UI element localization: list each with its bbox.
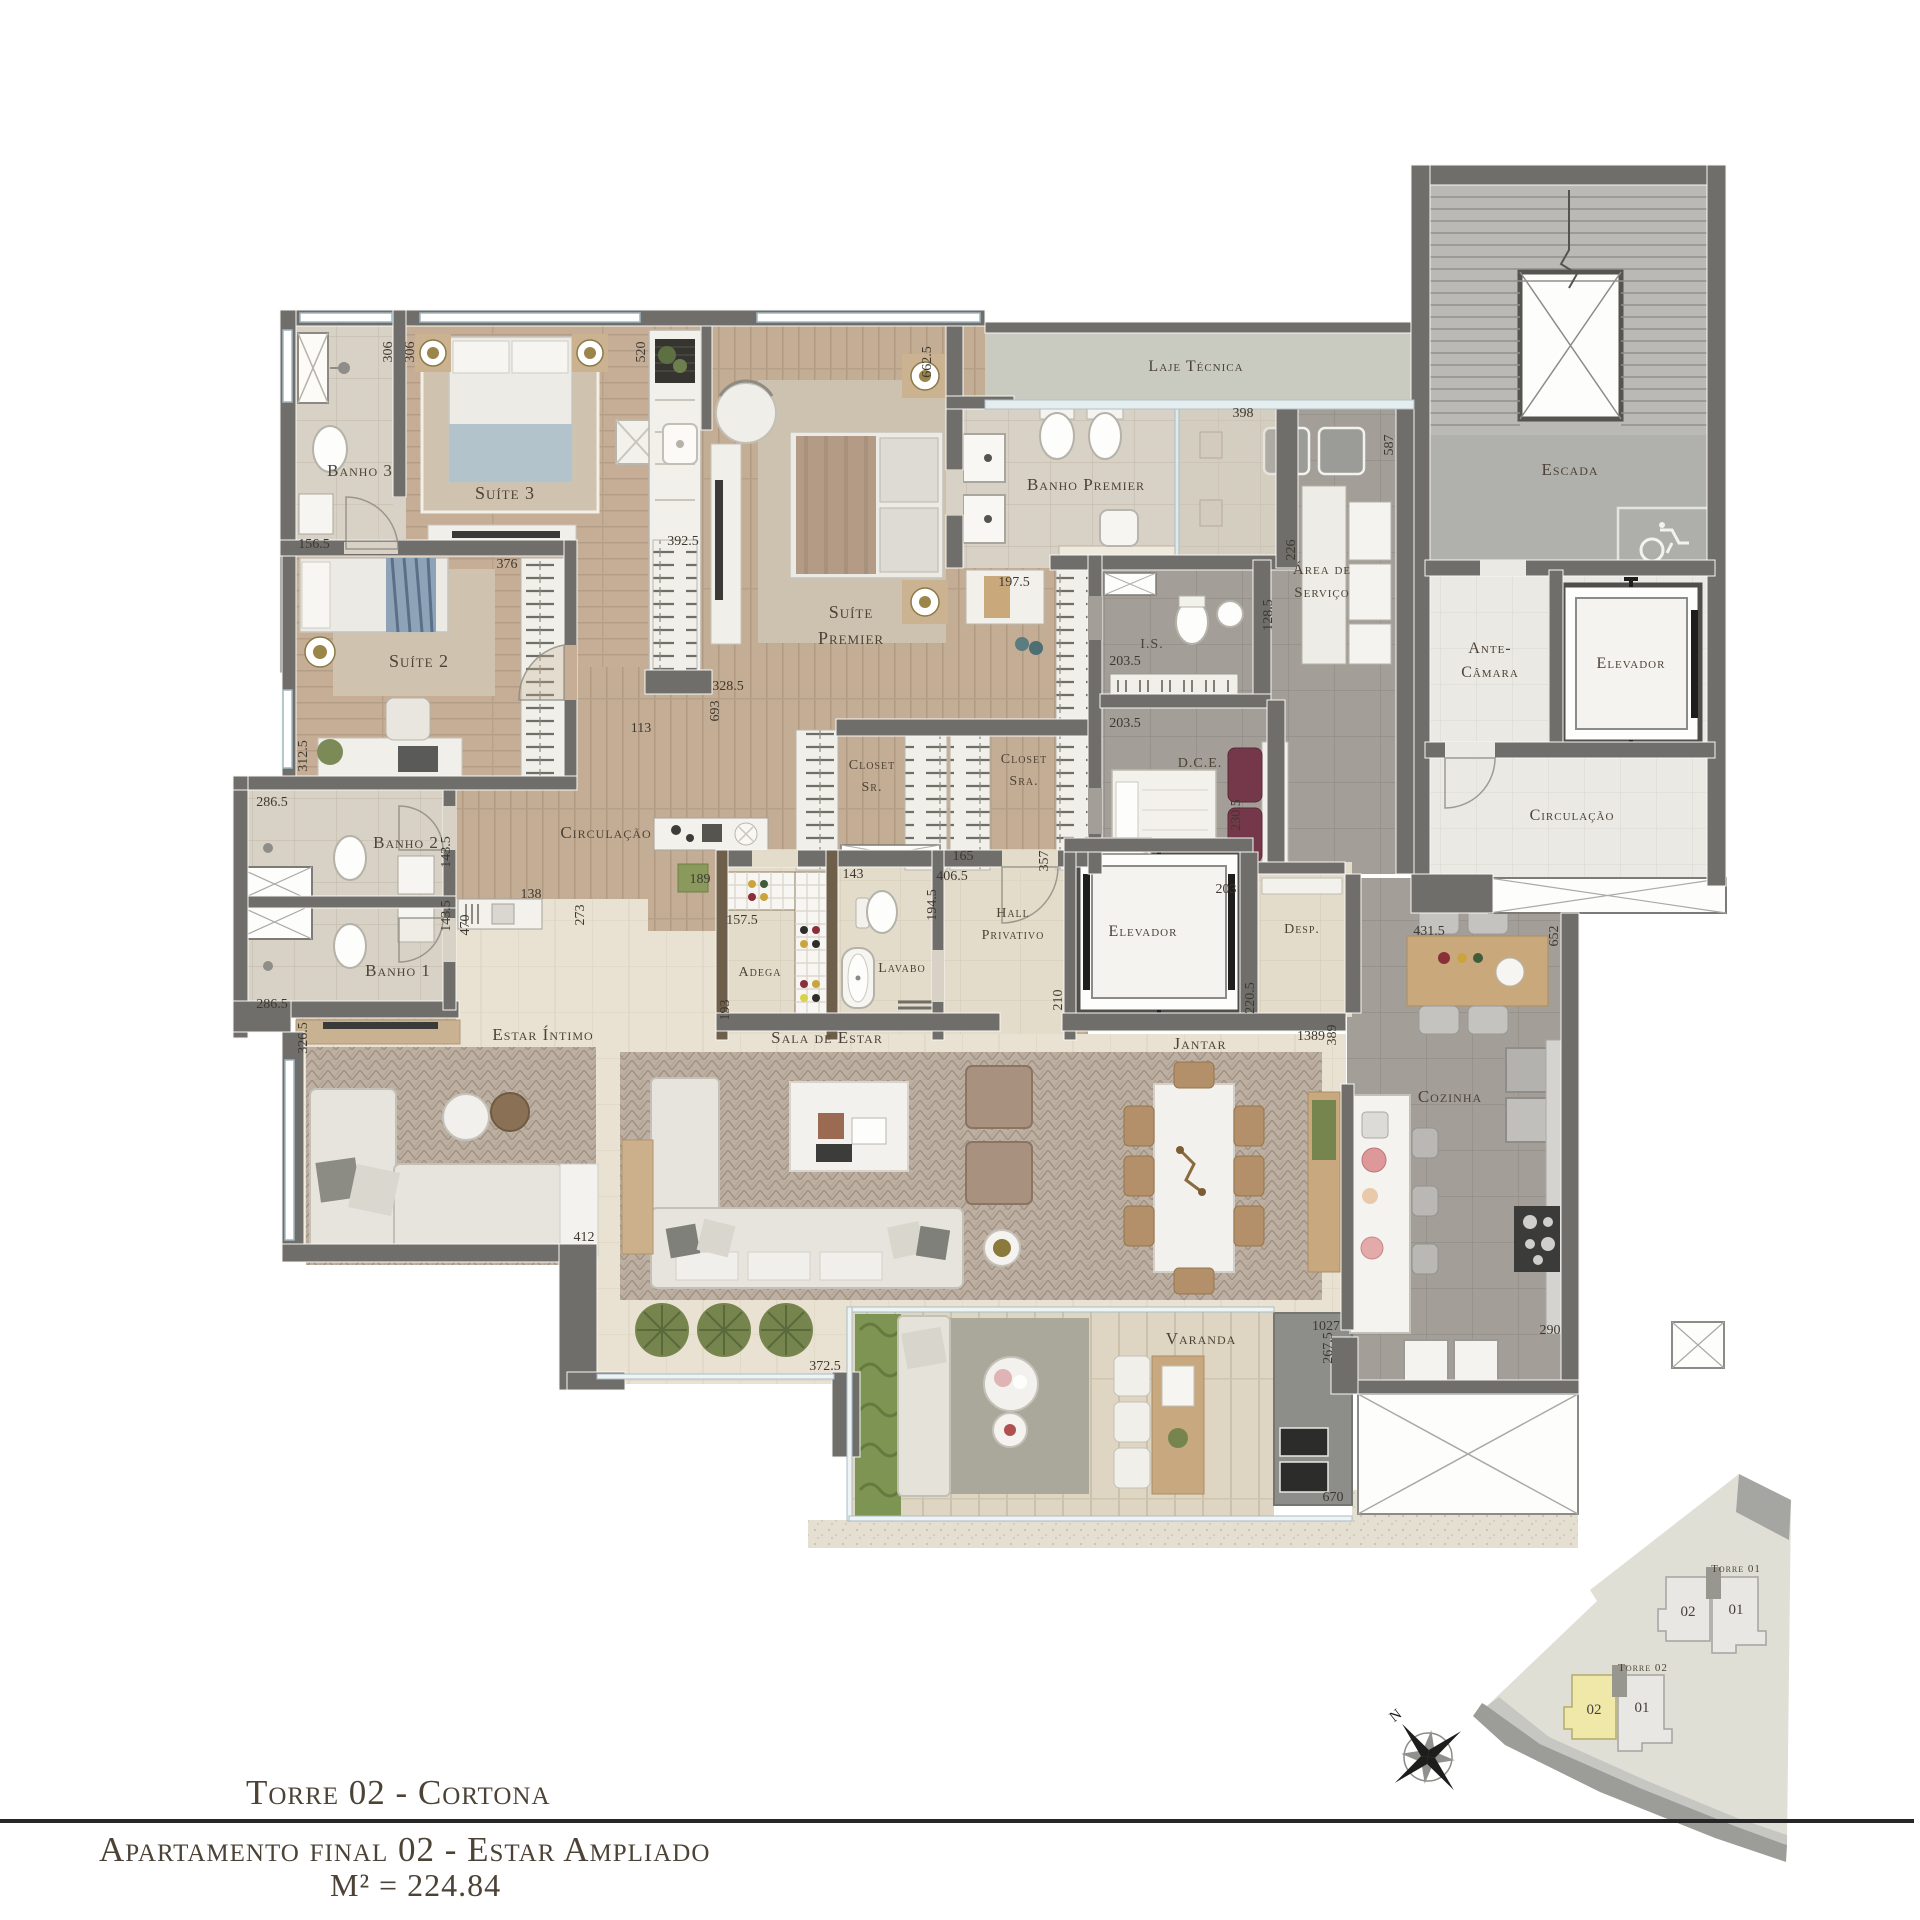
svg-text:273: 273 <box>573 905 588 926</box>
svg-text:143.5: 143.5 <box>439 836 454 868</box>
svg-text:431.5: 431.5 <box>1413 924 1445 939</box>
svg-text:306: 306 <box>381 342 396 363</box>
svg-text:D.C.E.: D.C.E. <box>1178 756 1223 771</box>
svg-text:398: 398 <box>1233 406 1254 421</box>
svg-text:470: 470 <box>458 915 473 936</box>
svg-text:389: 389 <box>1325 1025 1340 1046</box>
svg-text:376: 376 <box>497 557 518 572</box>
svg-text:Varanda: Varanda <box>1166 1329 1237 1348</box>
svg-text:138: 138 <box>521 887 542 902</box>
svg-text:Laje Técnica: Laje Técnica <box>1148 358 1243 375</box>
svg-text:230.5: 230.5 <box>1229 799 1244 831</box>
svg-text:312.5: 312.5 <box>296 740 311 772</box>
svg-text:290: 290 <box>1540 1323 1561 1338</box>
svg-text:01: 01 <box>1635 1700 1650 1716</box>
svg-text:02: 02 <box>1681 1604 1696 1620</box>
svg-text:Adega: Adega <box>739 965 782 980</box>
svg-text:Sala de Estar: Sala de Estar <box>771 1028 883 1047</box>
svg-text:Estar Íntimo: Estar Íntimo <box>492 1025 593 1044</box>
svg-text:Serviço: Serviço <box>1294 585 1349 601</box>
svg-text:328.5: 328.5 <box>712 679 744 694</box>
svg-text:Premier: Premier <box>818 628 884 648</box>
svg-text:Ante-: Ante- <box>1468 640 1511 657</box>
svg-text:Área de: Área de <box>1293 561 1351 578</box>
svg-text:326.5: 326.5 <box>296 1022 311 1054</box>
svg-text:Banho 2: Banho 2 <box>373 833 439 852</box>
svg-text:02: 02 <box>1587 1702 1602 1718</box>
svg-text:197.5: 197.5 <box>998 575 1030 590</box>
svg-text:165: 165 <box>953 849 974 864</box>
svg-text:194.5: 194.5 <box>925 889 940 921</box>
svg-text:Circulação: Circulação <box>560 823 651 842</box>
svg-text:Closet: Closet <box>849 758 895 773</box>
svg-text:Torre 01: Torre 01 <box>1711 1563 1761 1575</box>
svg-text:Desp.: Desp. <box>1284 922 1320 937</box>
svg-text:Banho Premier: Banho Premier <box>1027 475 1145 494</box>
svg-text:Elevador: Elevador <box>1109 923 1178 940</box>
svg-text:Suíte 2: Suíte 2 <box>389 651 449 671</box>
svg-text:670: 670 <box>1323 1490 1344 1505</box>
svg-text:Lavabo: Lavabo <box>878 961 926 976</box>
svg-text:372.5: 372.5 <box>809 1359 841 1374</box>
svg-text:306: 306 <box>403 342 418 363</box>
svg-text:1389: 1389 <box>1297 1029 1325 1044</box>
svg-text:Suíte 3: Suíte 3 <box>475 483 535 503</box>
svg-text:203.5: 203.5 <box>1109 716 1141 731</box>
svg-text:Sra.: Sra. <box>1009 774 1038 789</box>
svg-text:1027: 1027 <box>1312 1319 1340 1334</box>
svg-text:01: 01 <box>1729 1602 1744 1618</box>
svg-text:210: 210 <box>1051 990 1066 1011</box>
svg-text:Escada: Escada <box>1541 460 1598 479</box>
svg-text:412: 412 <box>574 1230 595 1245</box>
svg-text:693: 693 <box>708 701 723 722</box>
svg-text:286.5: 286.5 <box>256 795 288 810</box>
svg-text:189: 189 <box>690 872 711 887</box>
svg-text:203: 203 <box>1216 882 1237 897</box>
svg-text:Privativo: Privativo <box>982 928 1045 943</box>
svg-text:Torre 02 - Cortona: Torre 02 - Cortona <box>246 1773 551 1812</box>
svg-text:143: 143 <box>843 867 864 882</box>
svg-text:128.5: 128.5 <box>1261 599 1276 631</box>
svg-text:203.5: 203.5 <box>1109 654 1141 669</box>
svg-text:267.5: 267.5 <box>1321 1332 1336 1364</box>
svg-text:157.5: 157.5 <box>726 913 758 928</box>
svg-text:520: 520 <box>634 342 649 363</box>
svg-text:Torre 02: Torre 02 <box>1618 1662 1668 1674</box>
svg-text:Jantar: Jantar <box>1174 1034 1227 1053</box>
svg-text:Hall: Hall <box>996 906 1030 921</box>
svg-text:662.5: 662.5 <box>920 346 935 378</box>
svg-text:220.5: 220.5 <box>1243 982 1258 1014</box>
svg-text:Câmara: Câmara <box>1461 664 1519 681</box>
svg-text:143.5: 143.5 <box>439 900 454 932</box>
svg-text:M² = 224.84: M² = 224.84 <box>330 1867 501 1903</box>
svg-text:286.5: 286.5 <box>256 997 288 1012</box>
svg-text:392.5: 392.5 <box>667 534 699 549</box>
svg-text:652: 652 <box>1547 926 1562 947</box>
svg-text:193: 193 <box>718 1000 733 1021</box>
svg-text:Circulação: Circulação <box>1530 807 1615 824</box>
svg-text:I.S.: I.S. <box>1140 637 1163 652</box>
svg-text:Banho 3: Banho 3 <box>327 461 393 480</box>
svg-text:226: 226 <box>1284 540 1299 561</box>
svg-text:Closet: Closet <box>1001 752 1047 767</box>
svg-text:406.5: 406.5 <box>936 869 968 884</box>
svg-text:Sr.: Sr. <box>862 780 883 795</box>
svg-text:156.5: 156.5 <box>298 537 330 552</box>
svg-text:357: 357 <box>1037 851 1052 872</box>
svg-text:587: 587 <box>1382 435 1397 456</box>
svg-text:Cozinha: Cozinha <box>1418 1087 1482 1106</box>
svg-text:Apartamento final 02 - Estar A: Apartamento final 02 - Estar Ampliado <box>99 1830 710 1869</box>
svg-text:Suíte: Suíte <box>829 602 874 622</box>
svg-text:113: 113 <box>631 721 651 736</box>
svg-text:Elevador: Elevador <box>1597 655 1666 672</box>
svg-text:Banho 1: Banho 1 <box>365 961 431 980</box>
